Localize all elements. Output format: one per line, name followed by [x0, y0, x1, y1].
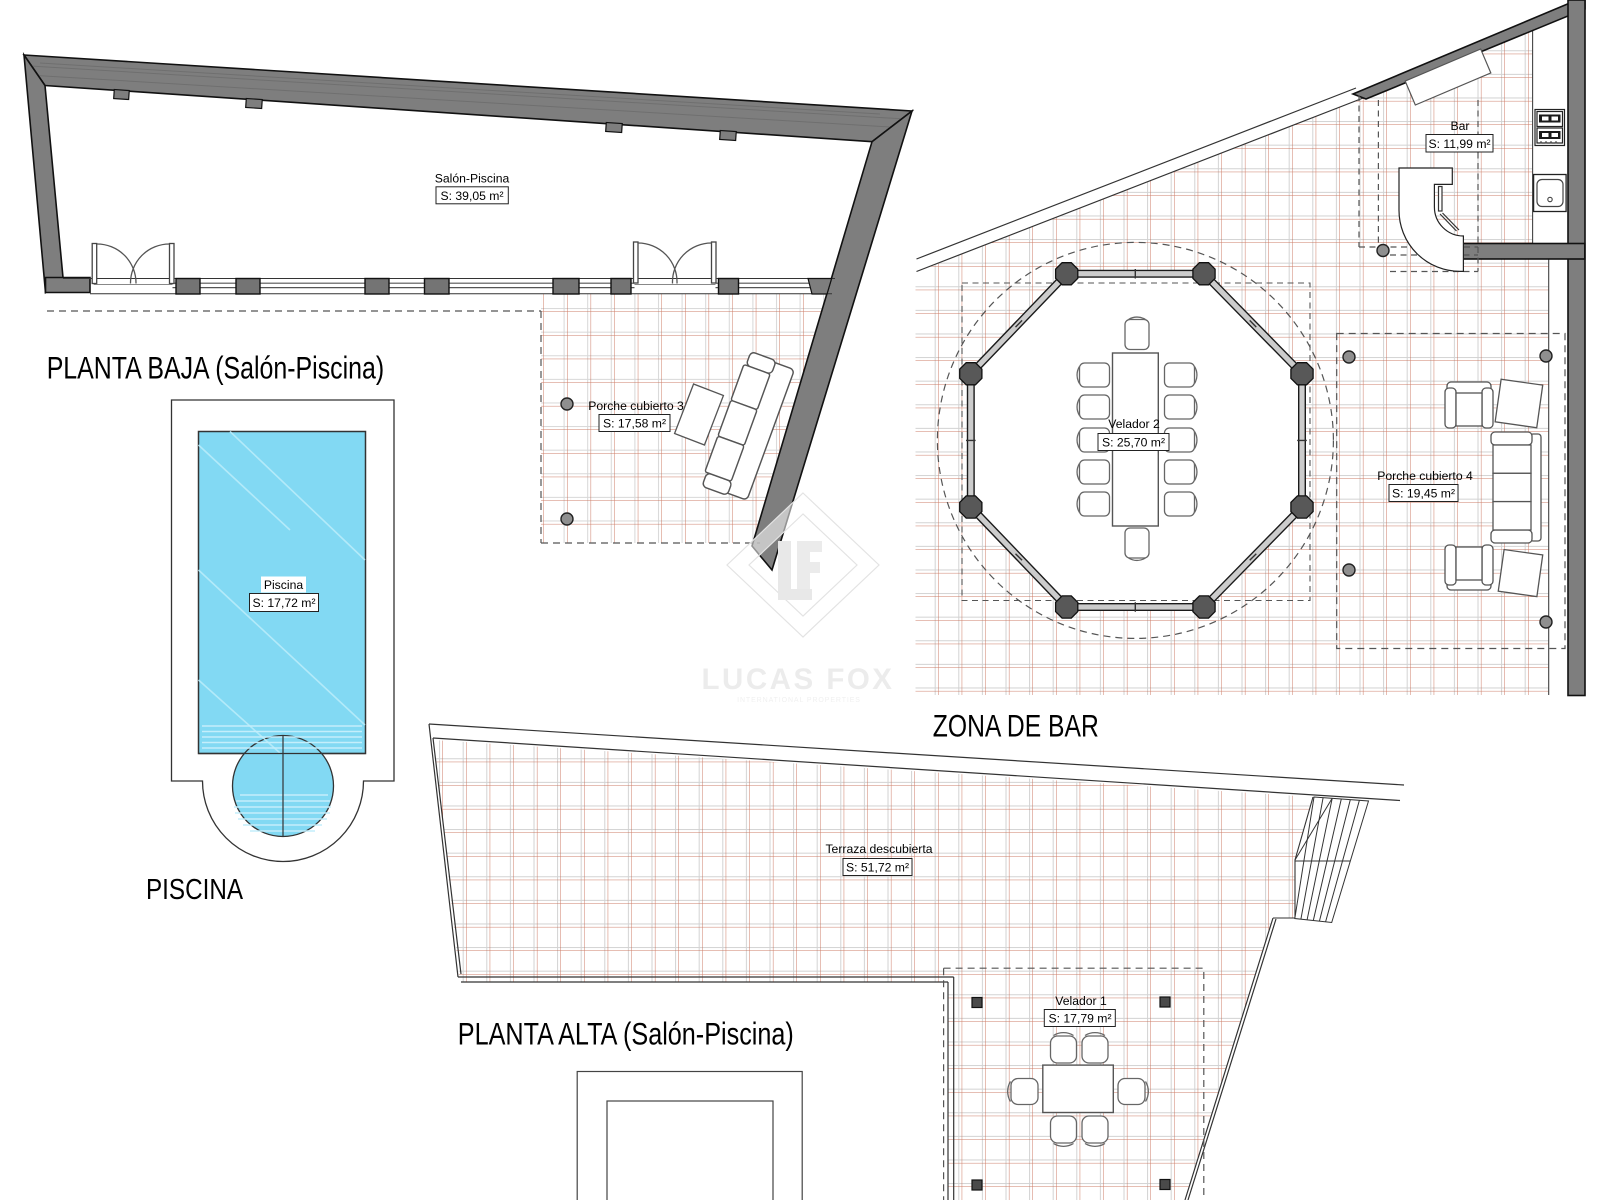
- svg-text:ZONA DE BAR: ZONA DE BAR: [933, 708, 1099, 744]
- svg-text:S: 51,72 m²: S: 51,72 m²: [846, 861, 909, 875]
- svg-text:PLANTA ALTA (Salón-Piscina): PLANTA ALTA (Salón-Piscina): [458, 1016, 794, 1052]
- svg-text:Velador 1: Velador 1: [1055, 994, 1107, 1008]
- svg-text:S: 17,72 m²: S: 17,72 m²: [253, 596, 316, 610]
- svg-text:S: 17,79 m²: S: 17,79 m²: [1049, 1012, 1112, 1026]
- svg-text:Piscina: Piscina: [264, 578, 304, 592]
- svg-text:Salón-Piscina: Salón-Piscina: [435, 172, 510, 186]
- svg-text:S: 25,70 m²: S: 25,70 m²: [1102, 436, 1165, 450]
- svg-text:Bar: Bar: [1451, 119, 1470, 133]
- svg-text:PLANTA BAJA (Salón-Piscina): PLANTA BAJA (Salón-Piscina): [47, 350, 385, 386]
- svg-text:LUCAS FOX: LUCAS FOX: [702, 663, 895, 696]
- svg-text:S: 11,99 m²: S: 11,99 m²: [1428, 137, 1490, 151]
- svg-text:INTERNATIONAL PROPERTIES: INTERNATIONAL PROPERTIES: [737, 697, 861, 704]
- svg-text:S: 17,58 m²: S: 17,58 m²: [603, 417, 666, 431]
- svg-text:Velador 2: Velador 2: [1108, 417, 1160, 431]
- svg-text:PISCINA: PISCINA: [146, 874, 244, 906]
- svg-text:S: 19,45 m²: S: 19,45 m²: [1392, 487, 1455, 501]
- svg-text:Terraza descubierta: Terraza descubierta: [825, 842, 932, 856]
- svg-text:Porche cubierto 3: Porche cubierto 3: [588, 399, 684, 413]
- svg-text:Porche cubierto 4: Porche cubierto 4: [1377, 469, 1473, 483]
- svg-text:S: 39,05 m²: S: 39,05 m²: [441, 189, 504, 203]
